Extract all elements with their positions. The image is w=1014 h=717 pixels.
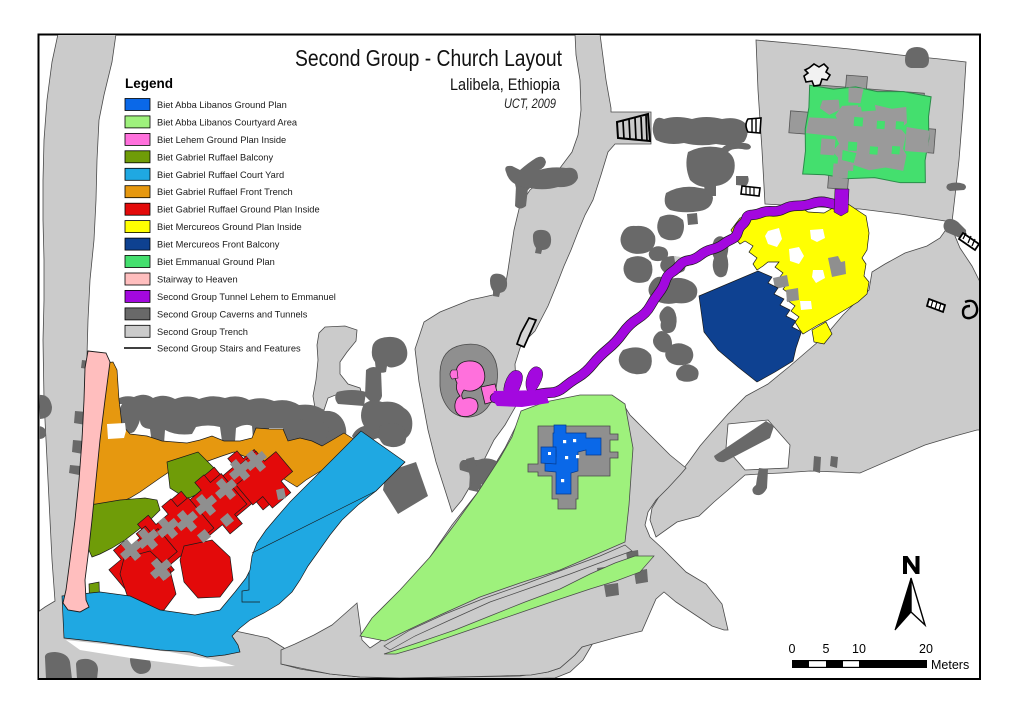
svg-text:0: 0 <box>789 642 796 656</box>
svg-text:Biet Abba Libanos Ground Plan: Biet Abba Libanos Ground Plan <box>157 100 287 110</box>
svg-text:Biet Abba Libanos Courtyard Ar: Biet Abba Libanos Courtyard Area <box>157 117 298 127</box>
svg-text:10: 10 <box>852 642 866 656</box>
svg-text:Second Group Caverns and Tunne: Second Group Caverns and Tunnels <box>157 309 308 319</box>
svg-text:20: 20 <box>919 642 933 656</box>
svg-text:Legend: Legend <box>125 76 173 91</box>
svg-text:Second Group Stairs and Featur: Second Group Stairs and Features <box>157 344 301 354</box>
svg-text:Biet Lehem Ground Plan Inside: Biet Lehem Ground Plan Inside <box>157 135 286 145</box>
svg-text:Biet Emmanual Ground Plan: Biet Emmanual Ground Plan <box>157 257 275 267</box>
svg-text:Stairway to Heaven: Stairway to Heaven <box>157 275 238 285</box>
svg-text:Second Group Tunnel Lehem to E: Second Group Tunnel Lehem to Emmanuel <box>157 292 336 302</box>
svg-text:Biet Gabriel Ruffael Court Yar: Biet Gabriel Ruffael Court Yard <box>157 170 284 180</box>
svg-text:Biet Gabriel Ruffael Balcony: Biet Gabriel Ruffael Balcony <box>157 152 273 162</box>
svg-text:UCT, 2009: UCT, 2009 <box>504 96 556 111</box>
svg-text:Lalibela, Ethiopia: Lalibela, Ethiopia <box>450 75 560 94</box>
svg-text:Second Group Trench: Second Group Trench <box>157 327 248 337</box>
svg-text:5: 5 <box>823 642 830 656</box>
svg-text:Biet Mercureos Front Balcony: Biet Mercureos Front Balcony <box>157 240 280 250</box>
svg-text:Meters: Meters <box>931 658 969 672</box>
svg-text:Biet Gabriel Ruffael Ground Pl: Biet Gabriel Ruffael Ground Plan Inside <box>157 205 320 215</box>
svg-text:Biet Mercureos Ground Plan Ins: Biet Mercureos Ground Plan Inside <box>157 222 302 232</box>
svg-text:Second Group - Church Layout: Second Group - Church Layout <box>295 45 563 71</box>
svg-text:Biet Gabriel Ruffael Front Tre: Biet Gabriel Ruffael Front Trench <box>157 187 293 197</box>
